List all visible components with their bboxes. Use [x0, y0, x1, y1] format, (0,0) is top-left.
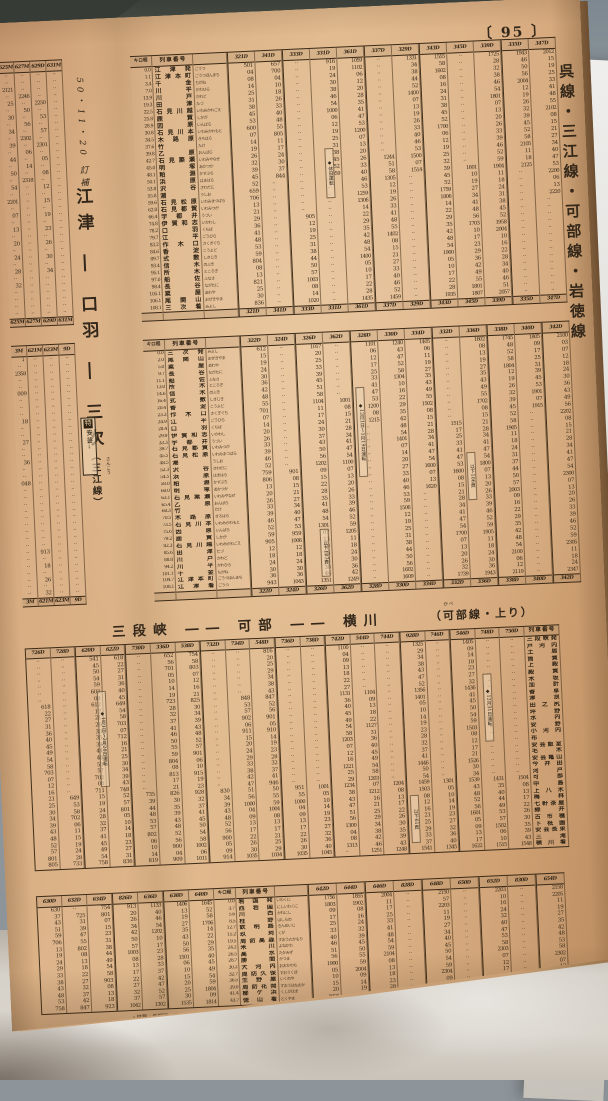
train-number-footer: 343D: [431, 299, 457, 308]
train-number-footer: 625M: [10, 318, 25, 327]
time-cell: 1035: [285, 851, 309, 859]
limited-express-mark: 特: [83, 419, 92, 428]
train-number: 631M: [46, 60, 61, 72]
time-cell: 1248: [384, 847, 408, 855]
train-number-footer: 336D: [471, 577, 497, 586]
sanko-down-table: キロ程0.01.13.47.013.919.322.525.828.930.83…: [130, 37, 568, 322]
time-cell: 1302: [143, 1001, 167, 1009]
time-cell: 923: [92, 1004, 116, 1012]
sanko-line-subtitle-kana: さんこう: [104, 456, 111, 474]
time-cell: 1045: [310, 850, 334, 858]
station-km: 43.7: [219, 998, 240, 1006]
time-cell: 914: [210, 855, 234, 863]
station-footer: [176, 590, 216, 600]
time-cell: 1042: [118, 1002, 142, 1010]
train-number-footer: 347D: [540, 294, 566, 303]
time-cell: 758: [86, 860, 110, 868]
kabe-band-subtitle-text: （可部線・上り）: [430, 605, 534, 623]
train-number-footer: 328D: [362, 582, 388, 591]
time-cell: 836: [110, 859, 134, 867]
time-cell: 847: [67, 1005, 91, 1013]
train-number: 623M: [43, 345, 58, 357]
time-cell: 1515: [485, 842, 509, 850]
station-footer: [154, 592, 175, 601]
train-number-footer: 334D: [416, 580, 442, 589]
train-number: 629D: [30, 61, 45, 73]
photo-of-timetable-page: { "photo": { "page_number": "〔 95 〕", "s…: [0, 0, 608, 1080]
train-number-footer: 623M: [54, 597, 69, 606]
time-cell: 819: [136, 858, 160, 866]
time-cell: 1535: [169, 1000, 193, 1008]
train-number-footer: 322D: [252, 587, 278, 596]
time-cell: 1345: [435, 844, 459, 852]
station-name-column: 列 車 番 号岩国発西岩国川西柱野欽明路玖珂周防高森米川高水勝間大河内周防久保生…: [236, 886, 280, 1004]
train-number-footer: 330D: [389, 581, 415, 590]
station-name: 横川着: [534, 839, 568, 847]
time-cell: 1034: [260, 852, 284, 860]
train-number-footer: 631M: [58, 316, 73, 325]
train-number-footer: 345D: [458, 297, 484, 306]
cutoff-table-strip-lower: 3M↓··2358····009······18····27····36····…: [11, 343, 87, 608]
train-number-footer: 340D: [526, 575, 552, 584]
time-cell: 1541: [410, 846, 434, 854]
station-footer: [205, 309, 238, 318]
time-cell: 1011: [185, 856, 209, 864]
train-number-footer: 329D: [403, 300, 429, 309]
down-arrow-icon: ↓: [87, 444, 91, 450]
time-cell: 909: [160, 857, 184, 865]
station-footer: [217, 588, 250, 597]
edition-note: 50・11・20 訂補: [73, 77, 90, 191]
train-number: 621M: [27, 345, 42, 357]
train-number-footer: 621M: [38, 597, 53, 606]
aki-express-box: 特 安芸 ↓: [80, 417, 98, 476]
time-cell: 1035: [235, 854, 259, 862]
train-number-footer: 337D: [376, 301, 402, 310]
train-number-footer: 342D: [554, 573, 580, 582]
train-number-footer: 324D: [279, 586, 305, 595]
train-number: 3M: [11, 346, 26, 358]
train-number-footer: 341D: [266, 306, 292, 315]
cutoff-table-strip-upper: 625M····2121··25··30··34··39··44··50··54…: [0, 59, 74, 328]
train-number-footer: 361D: [348, 302, 374, 311]
time-cell: 1622: [460, 843, 484, 851]
train-number: 9D: [59, 344, 74, 356]
time-cell: 1251: [360, 848, 384, 856]
train-number: 627M: [14, 62, 29, 74]
train-number-footer: 335D: [513, 295, 539, 304]
kabe-band-subtitle: かべ （可部線・上り）: [430, 603, 535, 624]
train-number-footer: 9D: [70, 596, 85, 605]
time-cell: 733: [60, 861, 84, 869]
train-number-footer: 362D: [334, 583, 360, 592]
train-number-footer: 333D: [294, 305, 320, 314]
timetable-page: 〔 95 〕 呉線・三江線・可部線・岩徳線 50・11・20 訂補 江津 ― 口…: [0, 0, 608, 1031]
time-cell: 758: [42, 1006, 66, 1014]
train-number-footer: 3M: [22, 598, 37, 607]
train-number-footer: 339D: [485, 296, 511, 305]
train-number-footer: 627M: [26, 317, 41, 326]
train-number-footer: 331D: [321, 304, 347, 313]
train-number-footer: 338D: [499, 576, 525, 585]
station-footer: [142, 312, 163, 321]
station-kana-column: いわくににしいわくにかわにしはしらのきんめいじくがすおうたかもりよねかわたかみず…: [275, 885, 313, 1003]
station-footer: [164, 310, 204, 320]
time-cell: 1814: [194, 999, 218, 1007]
train-number: 625M: [0, 62, 14, 74]
train-number-footer: 629D: [42, 317, 57, 326]
time-cell: 805: [35, 863, 59, 871]
time-cell: ··: [335, 849, 359, 857]
time-cell: 1548: [509, 841, 533, 849]
kabe-band-furigana: かべ: [443, 601, 454, 607]
aki-express-name: 安芸: [83, 429, 94, 444]
train-number-footer: 326D: [307, 585, 333, 594]
train-number-footer: 332D: [444, 578, 470, 587]
train-number-footer: 321D: [239, 307, 265, 316]
